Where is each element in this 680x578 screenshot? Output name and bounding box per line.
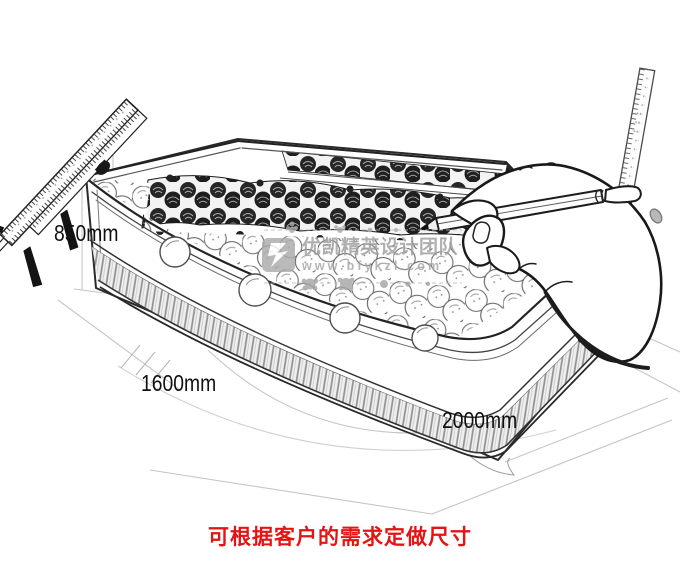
custom-size-caption: 可根据客户的需求定做尺寸 xyxy=(0,521,680,551)
watermark-ornament-top xyxy=(262,219,464,235)
dimension-label-depth: 1600mm xyxy=(141,370,216,397)
watermark: 优凯精英设计团队 www.bfykzl.com xyxy=(262,219,464,291)
watermark-url: www.bfykzl.com xyxy=(302,260,458,273)
brand-logo-icon xyxy=(262,237,295,273)
watermark-main: 优凯精英设计团队 www.bfykzl.com xyxy=(262,237,464,273)
pencil-eraser xyxy=(605,186,641,202)
sketch-page: 优凯精英设计团队 www.bfykzl.com 850mm 1600mm 200… xyxy=(0,0,680,578)
watermark-ornament-bottom xyxy=(262,275,464,291)
dimension-label-height: 850mm xyxy=(54,220,118,247)
caliper-depth-rod xyxy=(0,238,8,267)
dimension-label-length: 2000mm xyxy=(442,407,517,434)
watermark-brand: 优凯精英设计团队 xyxy=(302,238,458,257)
